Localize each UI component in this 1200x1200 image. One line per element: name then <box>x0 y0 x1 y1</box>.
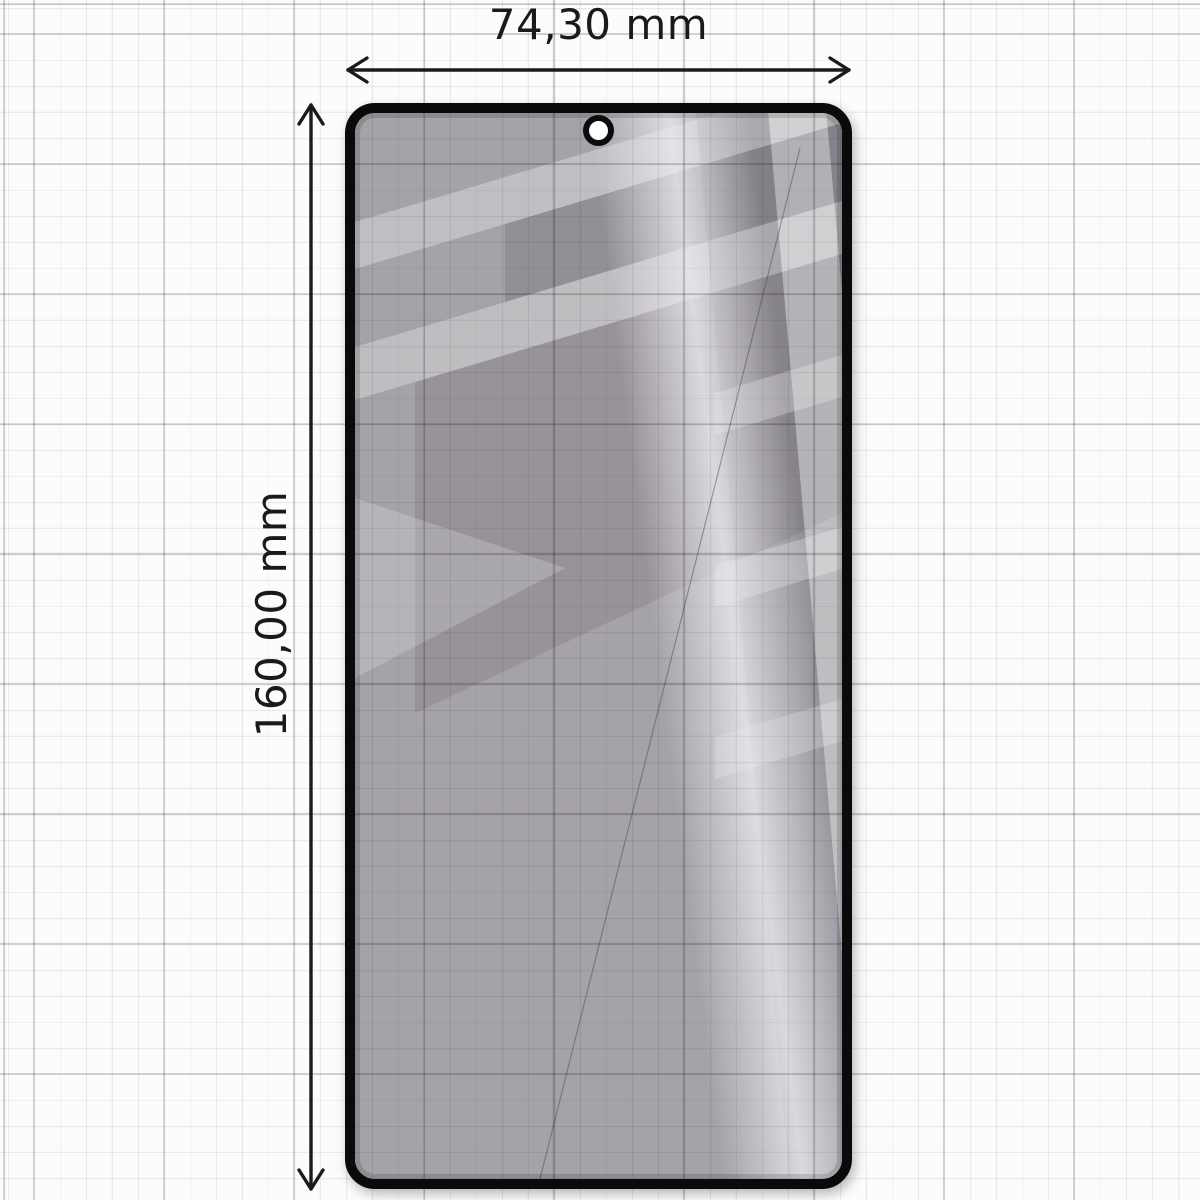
height-dimension-arrow <box>292 97 332 1197</box>
width-dimension-label: 74,30 mm <box>345 2 852 52</box>
camera-hole-icon <box>583 115 614 146</box>
blueprint-grid-background: 74,30 mm 160,00 mm <box>0 0 1200 1200</box>
height-dimension-label: 160,00 mm <box>249 454 295 774</box>
width-dimension-arrow <box>339 50 858 90</box>
glass-reflection-layer <box>355 113 842 1179</box>
screen-protector <box>345 103 852 1189</box>
